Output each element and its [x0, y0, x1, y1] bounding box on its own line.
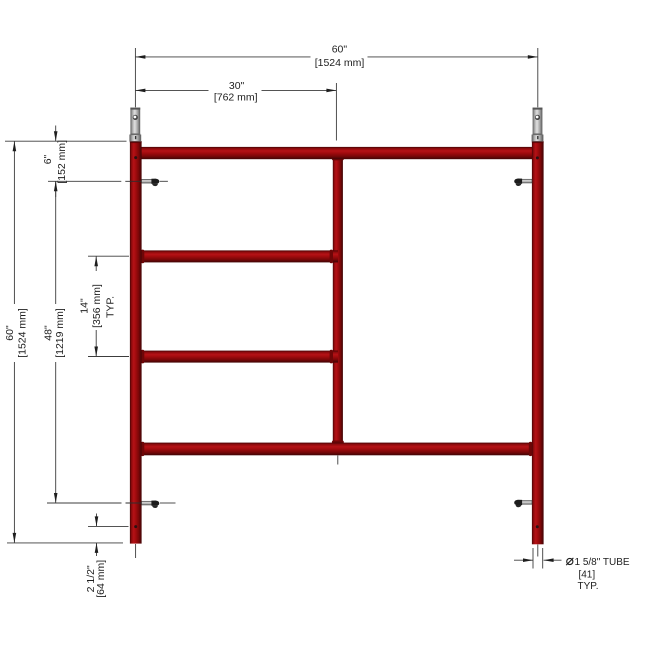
svg-text:[1524 mm]: [1524 mm] — [315, 57, 365, 69]
svg-text:14": 14" — [79, 298, 91, 314]
svg-text:6": 6" — [42, 154, 54, 164]
svg-text:60": 60" — [4, 325, 16, 341]
svg-text:[152 mm]: [152 mm] — [56, 140, 68, 184]
svg-text:TYP.: TYP. — [105, 296, 117, 318]
svg-text:48": 48" — [43, 325, 55, 341]
svg-text:[41]: [41] — [578, 569, 595, 580]
svg-text:[1524 mm]: [1524 mm] — [17, 308, 29, 358]
svg-text:[1219 mm]: [1219 mm] — [54, 308, 66, 358]
svg-text:TYP.: TYP. — [578, 581, 599, 592]
svg-text:[356 mm]: [356 mm] — [91, 284, 103, 328]
svg-text:[762 mm]: [762 mm] — [214, 91, 258, 103]
svg-text:30": 30" — [229, 80, 245, 92]
svg-text:[64 mm]: [64 mm] — [95, 560, 107, 598]
svg-text:60": 60" — [332, 44, 348, 56]
svg-text:1 5/8" TUBE: 1 5/8" TUBE — [575, 557, 630, 568]
